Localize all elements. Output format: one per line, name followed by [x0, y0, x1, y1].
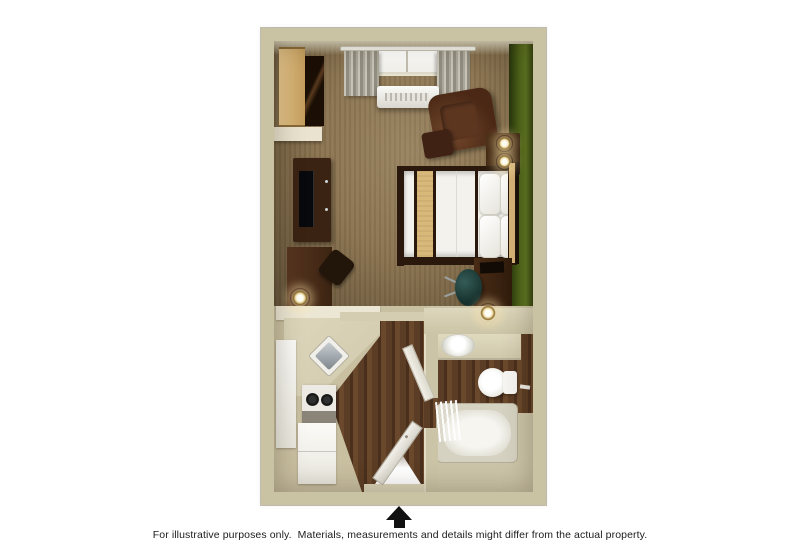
entrance-arrow-stem — [394, 519, 405, 528]
disclaimer-caption: For illustrative purposes only. Material… — [0, 529, 800, 541]
vanity-sink — [441, 334, 475, 357]
bed-rail-left — [397, 166, 404, 266]
tv-screen — [299, 171, 314, 227]
floorplan — [261, 28, 546, 505]
desk-lamp — [290, 288, 310, 308]
entry-threshold — [364, 484, 430, 492]
bathroom-wall-lower — [424, 428, 438, 492]
closet-shelf-ledge — [274, 127, 322, 141]
bed-divider-2 — [433, 171, 436, 257]
closet-interior — [305, 56, 324, 126]
desk-item — [480, 261, 505, 273]
ac-vents — [385, 93, 429, 101]
ottoman — [421, 129, 454, 160]
window-glass — [375, 49, 439, 74]
table-lamp-lower — [496, 153, 513, 170]
pillow-bottom-left — [479, 215, 501, 258]
burner-left — [306, 393, 319, 406]
headboard — [508, 162, 516, 264]
bed-duvet-crease — [456, 171, 457, 257]
ledge-lamp — [478, 303, 498, 323]
shower-curtain — [435, 400, 461, 442]
burner-right — [321, 394, 333, 406]
entry-door-knob — [404, 435, 408, 439]
bed-divider-3 — [475, 171, 478, 257]
floor-plan-page: { "caption": { "text": "For illustrative… — [0, 0, 800, 560]
pillow-top-left — [479, 173, 501, 215]
toilet-tank — [503, 371, 517, 394]
stove — [302, 385, 336, 423]
hall-threshold — [340, 312, 424, 321]
tall-cabinet — [276, 340, 296, 448]
tv-console — [293, 158, 331, 242]
curtain-left — [344, 51, 379, 96]
console-handle-top — [325, 180, 328, 183]
kitchen-sink-basin — [315, 342, 343, 370]
bed-runner — [417, 171, 433, 257]
stove-front — [302, 411, 336, 423]
console-handle-bottom — [325, 208, 328, 211]
floorplan-interior — [274, 41, 533, 492]
closet-shelves — [279, 47, 305, 127]
refrigerator — [298, 423, 336, 484]
table-lamp-upper — [496, 135, 513, 152]
headboard-back — [516, 162, 519, 264]
entrance-arrow-head — [386, 506, 412, 520]
office-chair — [455, 269, 482, 306]
refrigerator-divider — [298, 451, 336, 452]
